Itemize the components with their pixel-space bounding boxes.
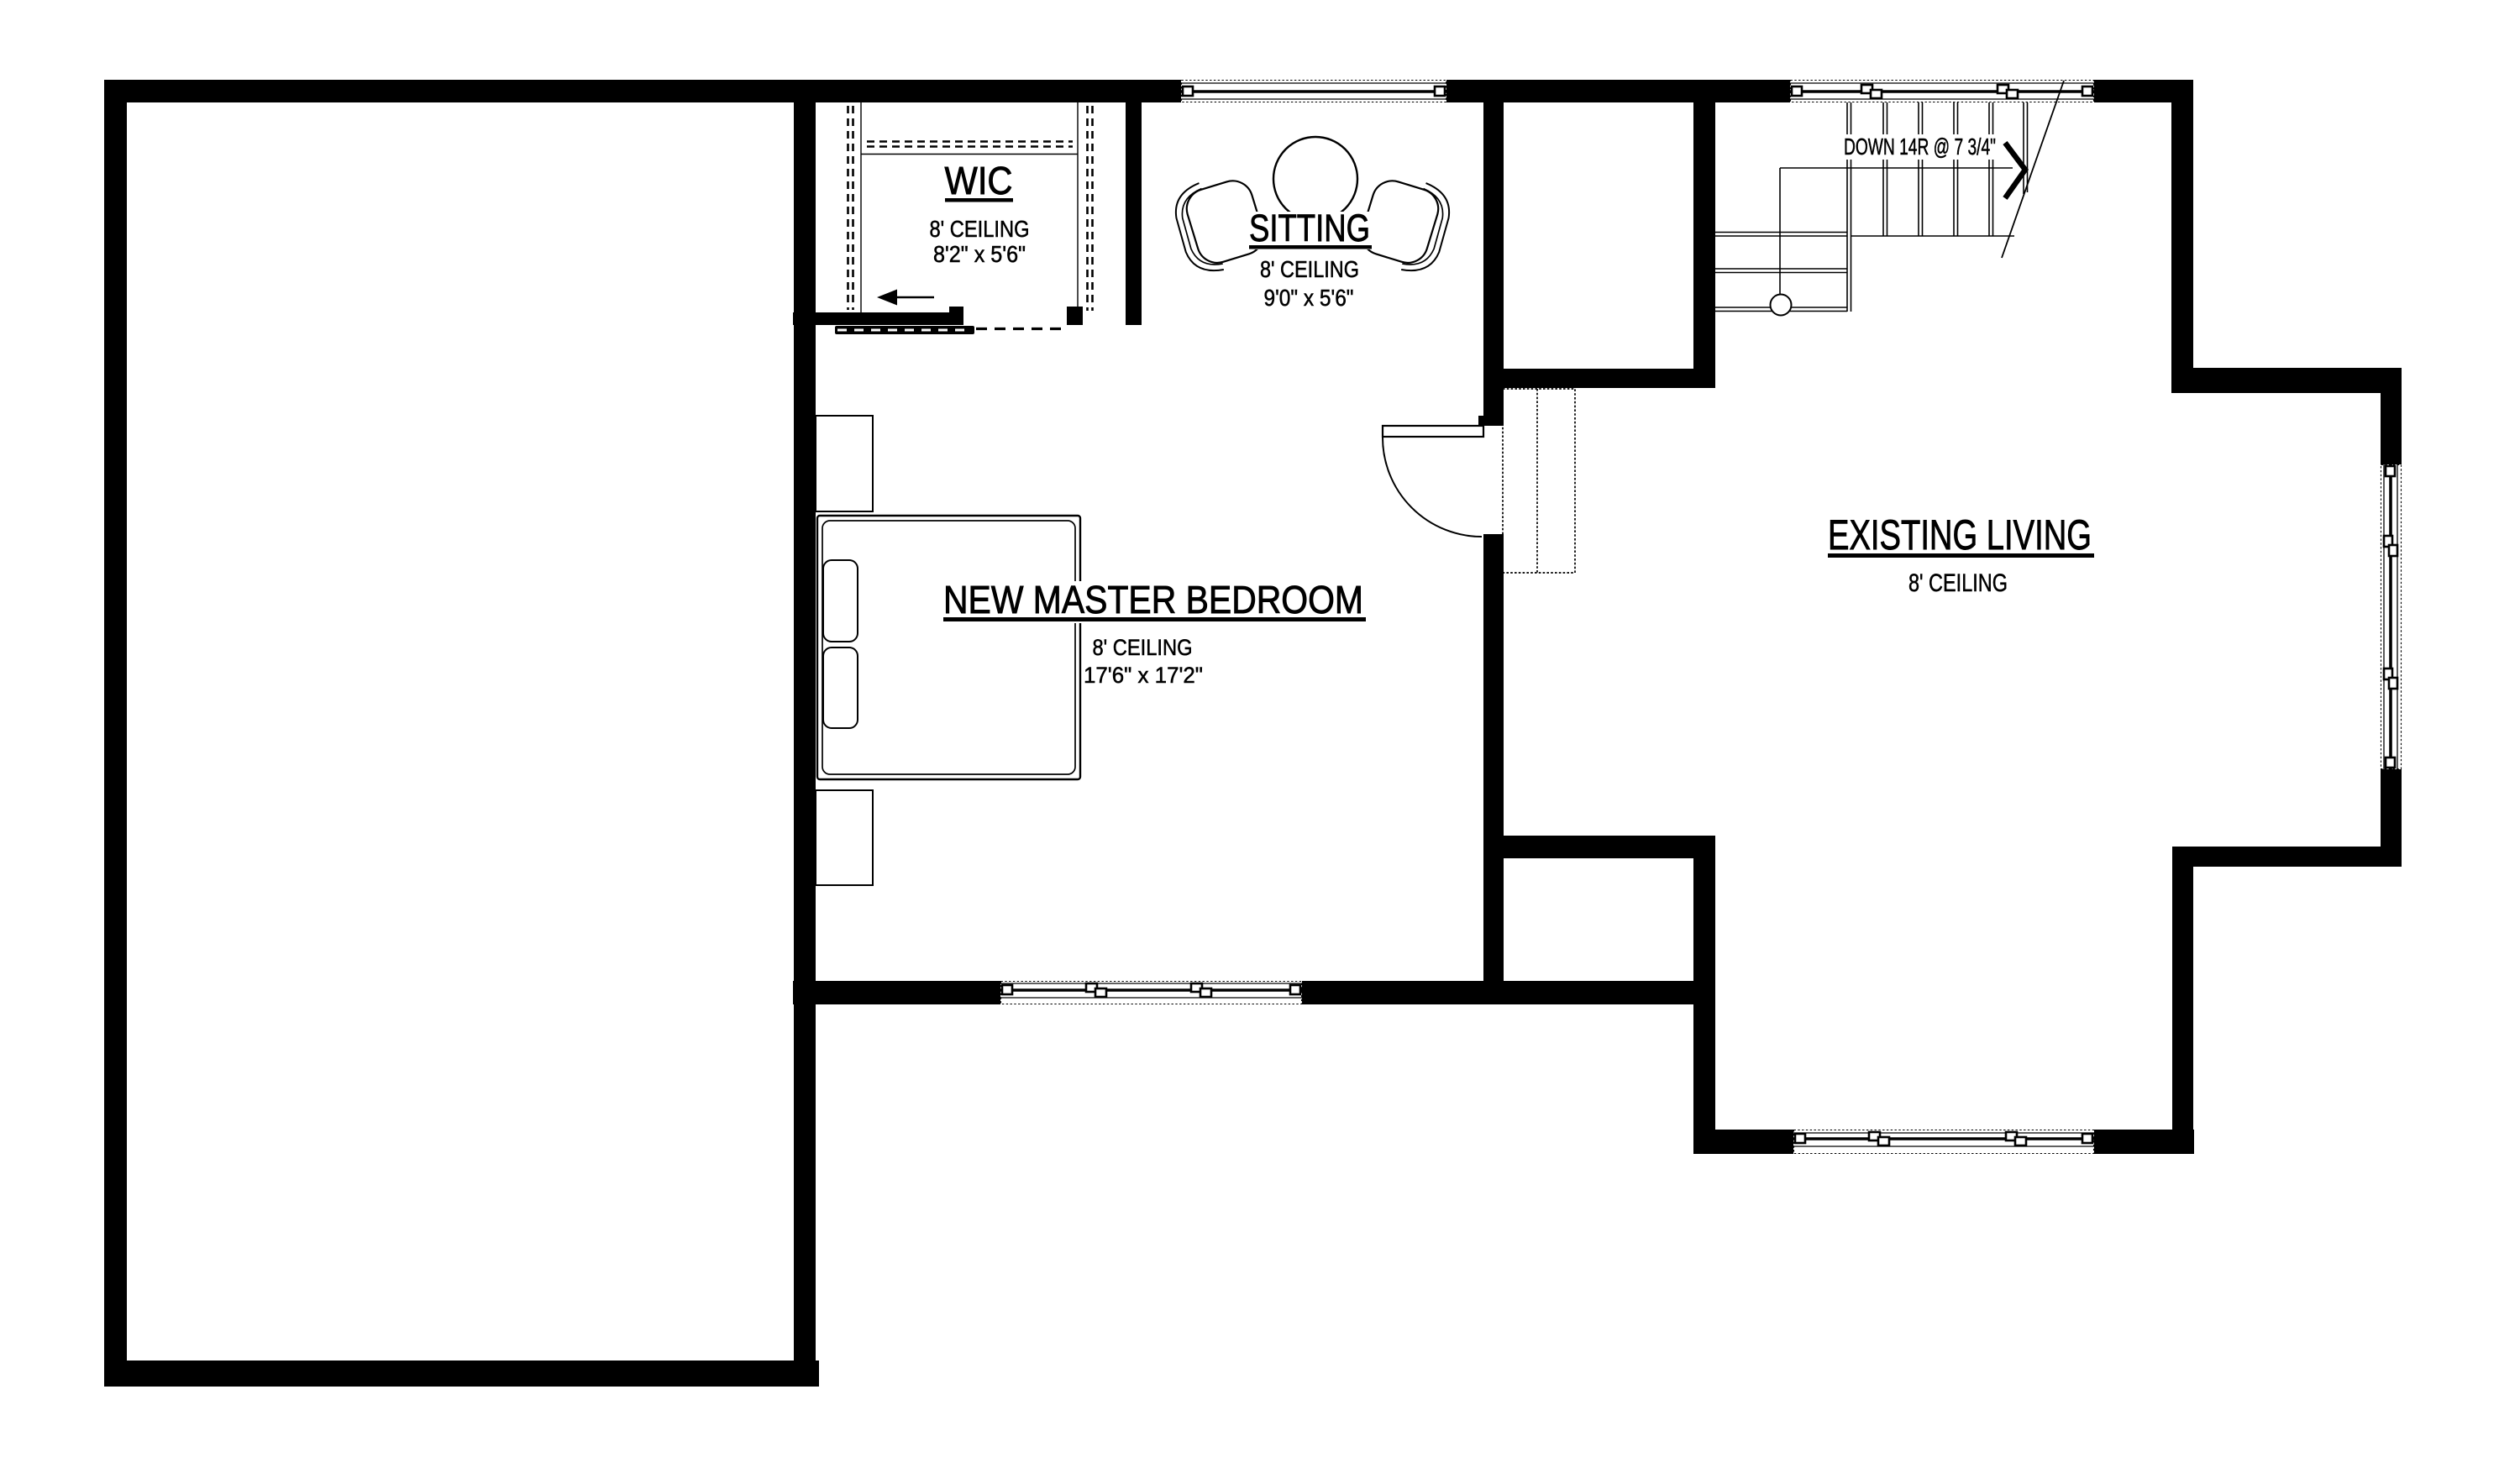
svg-text:WIC: WIC <box>945 159 1013 202</box>
svg-text:8' CEILING: 8' CEILING <box>1908 569 2008 597</box>
svg-text:8' CEILING: 8' CEILING <box>1093 635 1193 660</box>
svg-text:SITTING: SITTING <box>1249 207 1370 249</box>
svg-text:8' CEILING: 8' CEILING <box>1260 256 1359 282</box>
svg-text:8'2" x 5'6": 8'2" x 5'6" <box>933 241 1026 267</box>
svg-text:9'0" x 5'6": 9'0" x 5'6" <box>1264 285 1354 311</box>
svg-text:EXISTING LIVING: EXISTING LIVING <box>1828 511 2092 558</box>
svg-text:DOWN 14R @ 7 3/4": DOWN 14R @ 7 3/4" <box>1844 134 1996 160</box>
svg-text:8' CEILING: 8' CEILING <box>930 216 1030 242</box>
svg-text:NEW MASTER BEDROOM: NEW MASTER BEDROOM <box>943 578 1363 621</box>
svg-text:17'6" x 17'2": 17'6" x 17'2" <box>1084 663 1203 688</box>
